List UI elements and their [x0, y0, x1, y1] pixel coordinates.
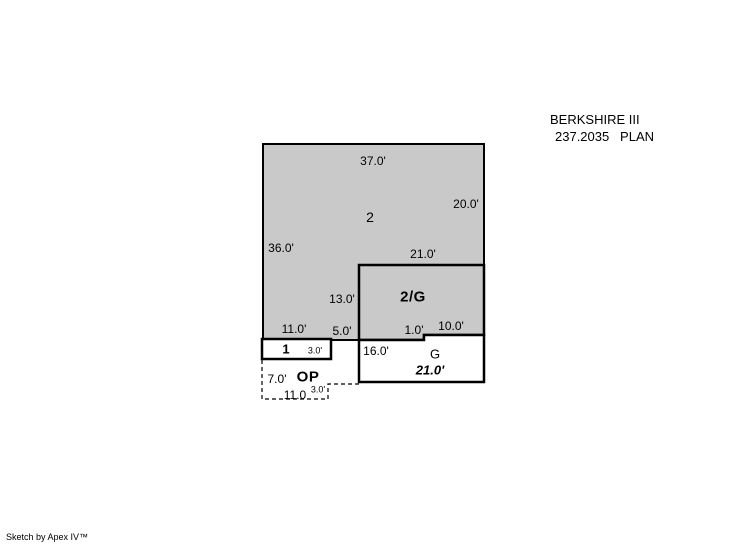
dim-g-top-right: 10.0'	[438, 320, 464, 332]
dim-right-upper: 20.0'	[453, 198, 479, 210]
dim-op-bottom: 11.0	[284, 389, 306, 401]
plan-model-name: BERKSHIRE III	[550, 113, 640, 126]
dim-og-left: 13.0'	[329, 293, 355, 305]
area-g-label: G	[430, 348, 440, 361]
dim-top-width: 37.0'	[360, 155, 386, 167]
dim-og-top: 21.0'	[410, 248, 436, 260]
area-2-label: 2	[366, 210, 374, 224]
plan-number: 237.2035 PLAN	[555, 130, 654, 143]
dim-ledge: 5.0'	[333, 325, 352, 337]
area-2g-label: 2/G	[400, 290, 426, 305]
sketch-page: BERKSHIRE III 237.2035 PLAN 37.0' 20.0' …	[0, 0, 746, 547]
floor-plan-drawing	[0, 0, 746, 547]
area-1-label: 1	[282, 343, 289, 356]
dim-left-height: 36.0'	[268, 242, 294, 254]
dim-porch-height: 3.0'	[308, 347, 322, 356]
dim-porch-top: 11.0'	[282, 323, 307, 335]
dim-g-bottom: 21.0'	[416, 364, 444, 377]
sketch-credit: Sketch by Apex IV™	[6, 532, 88, 542]
dim-step: 1.0'	[405, 324, 424, 336]
dim-op-left: 7.0'	[268, 373, 287, 385]
area-op-label: OP	[297, 370, 320, 385]
dim-op-step: 3.0'	[311, 386, 325, 395]
dim-g-left: 16.0'	[363, 345, 389, 357]
